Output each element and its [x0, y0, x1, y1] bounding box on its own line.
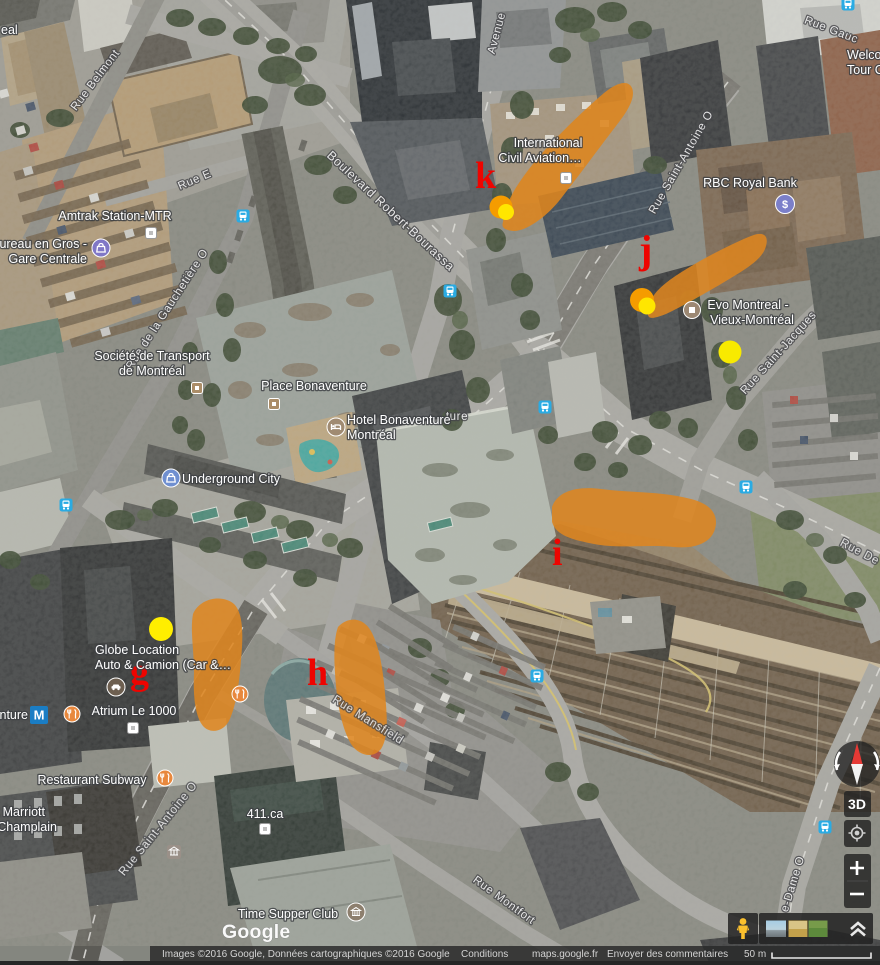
svg-text:Globe Location: Globe Location — [95, 643, 179, 657]
svg-text:Hotel Bonaventure: Hotel Bonaventure — [347, 413, 451, 427]
svg-text:Bureau en Gros -: Bureau en Gros - — [0, 237, 87, 251]
svg-text:Gare Centrale: Gare Centrale — [8, 252, 87, 266]
svg-text:Tour C: Tour C — [847, 63, 880, 77]
svg-text:de Montréal: de Montréal — [119, 364, 185, 378]
svg-text:Marriott: Marriott — [3, 805, 46, 819]
svg-text:k: k — [475, 155, 497, 197]
svg-text:Evo Montreal -: Evo Montreal - — [707, 298, 788, 312]
svg-text:Société de Transport: Société de Transport — [94, 349, 210, 363]
svg-text:Amtrak Station-MTR: Amtrak Station-MTR — [58, 209, 171, 223]
svg-text:Restaurant Subway: Restaurant Subway — [37, 773, 147, 787]
svg-text:Images ©2016 Google, Données c: Images ©2016 Google, Données cartographi… — [162, 949, 450, 960]
svg-text:Champlain: Champlain — [0, 820, 57, 834]
svg-text:411.ca: 411.ca — [247, 807, 284, 821]
svg-text:maps.google.fr: maps.google.fr — [532, 949, 599, 960]
svg-text:Underground City: Underground City — [182, 472, 281, 486]
svg-text:Atrium Le 1000: Atrium Le 1000 — [92, 704, 177, 718]
svg-text:Google: Google — [222, 921, 290, 943]
svg-text:RBC Royal Bank: RBC Royal Bank — [703, 176, 798, 190]
svg-text:nture: nture — [0, 708, 28, 722]
svg-text:Conditions: Conditions — [461, 949, 508, 960]
svg-text:j: j — [638, 227, 652, 272]
svg-text:Time Supper Club: Time Supper Club — [238, 907, 338, 921]
svg-text:Welcom: Welcom — [847, 48, 880, 62]
svg-text:h: h — [307, 652, 328, 694]
svg-text:Vieux-Montréal: Vieux-Montréal — [710, 313, 794, 327]
svg-text:Civil Aviation…: Civil Aviation… — [498, 151, 581, 165]
svg-text:Place Bonaventure: Place Bonaventure — [261, 379, 367, 393]
svg-text:i: i — [552, 532, 563, 574]
svg-text:eal: eal — [1, 23, 18, 37]
svg-text:M: M — [34, 708, 45, 723]
svg-text:Auto & Camion (Car &…: Auto & Camion (Car &… — [95, 658, 231, 672]
svg-text:$: $ — [782, 199, 788, 211]
svg-text:Envoyer des commentaires: Envoyer des commentaires — [607, 949, 728, 960]
svg-text:50 m: 50 m — [744, 949, 766, 960]
svg-text:3D: 3D — [848, 796, 866, 812]
svg-text:Montréal: Montréal — [347, 428, 396, 442]
svg-text:International: International — [514, 136, 583, 150]
